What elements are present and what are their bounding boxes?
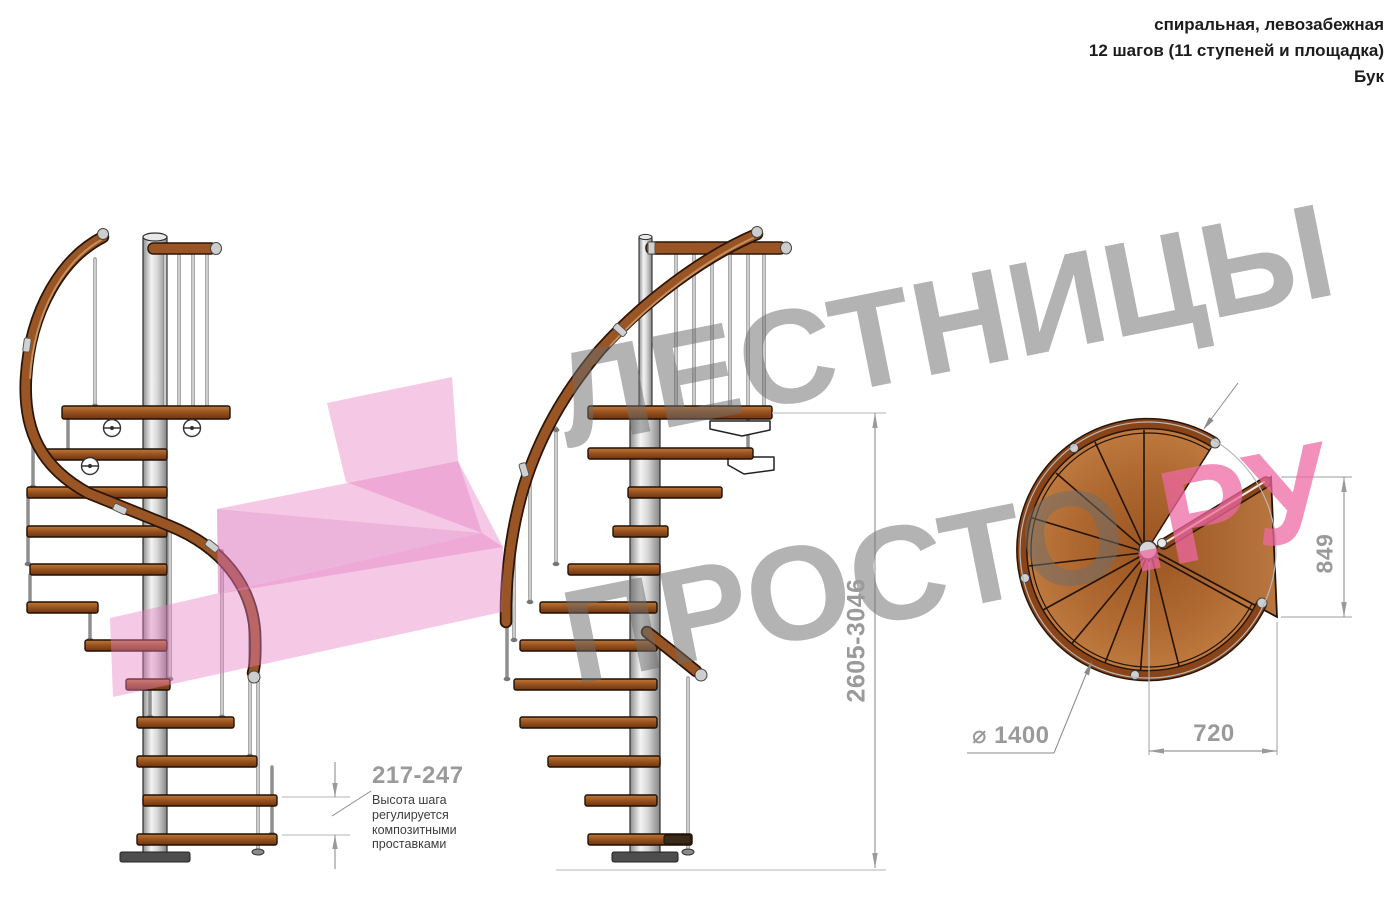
center-pole-top <box>639 237 652 409</box>
connector-discs <box>82 420 201 475</box>
stair-steps-count: 12 шагов (11 ступеней и площадка) <box>1089 38 1384 64</box>
baluster-foot <box>252 849 264 855</box>
rail-sleeves <box>23 338 220 553</box>
dim-total-height: 2605-3046 <box>843 541 872 741</box>
dim-diameter: ⌀ 1400 <box>972 721 1050 750</box>
side-view-front <box>504 227 792 863</box>
drawing-sheet: спиральная, левозабежная 12 шагов (11 ст… <box>0 0 1400 907</box>
stair-material: Бук <box>1089 64 1384 90</box>
handrail-end-ball <box>248 671 260 683</box>
handrail-end-ball <box>695 669 707 681</box>
landing-rail <box>148 243 216 254</box>
base-plate <box>612 852 678 862</box>
dim-step-height: 217-247 <box>372 762 464 790</box>
baluster-foot <box>682 849 694 855</box>
base-plate <box>120 852 190 862</box>
title-block: спиральная, левозабежная 12 шагов (11 ст… <box>1089 12 1384 90</box>
dim-landing-depth: 720 <box>1184 720 1244 748</box>
step-height-note: Высота шага регулируется композитными пр… <box>372 793 457 852</box>
center-post <box>1139 541 1157 559</box>
staircase-drawing <box>0 0 1400 907</box>
dim-landing-side: 849 <box>1312 454 1339 654</box>
stair-type: спиральная, левозабежная <box>1089 12 1384 38</box>
